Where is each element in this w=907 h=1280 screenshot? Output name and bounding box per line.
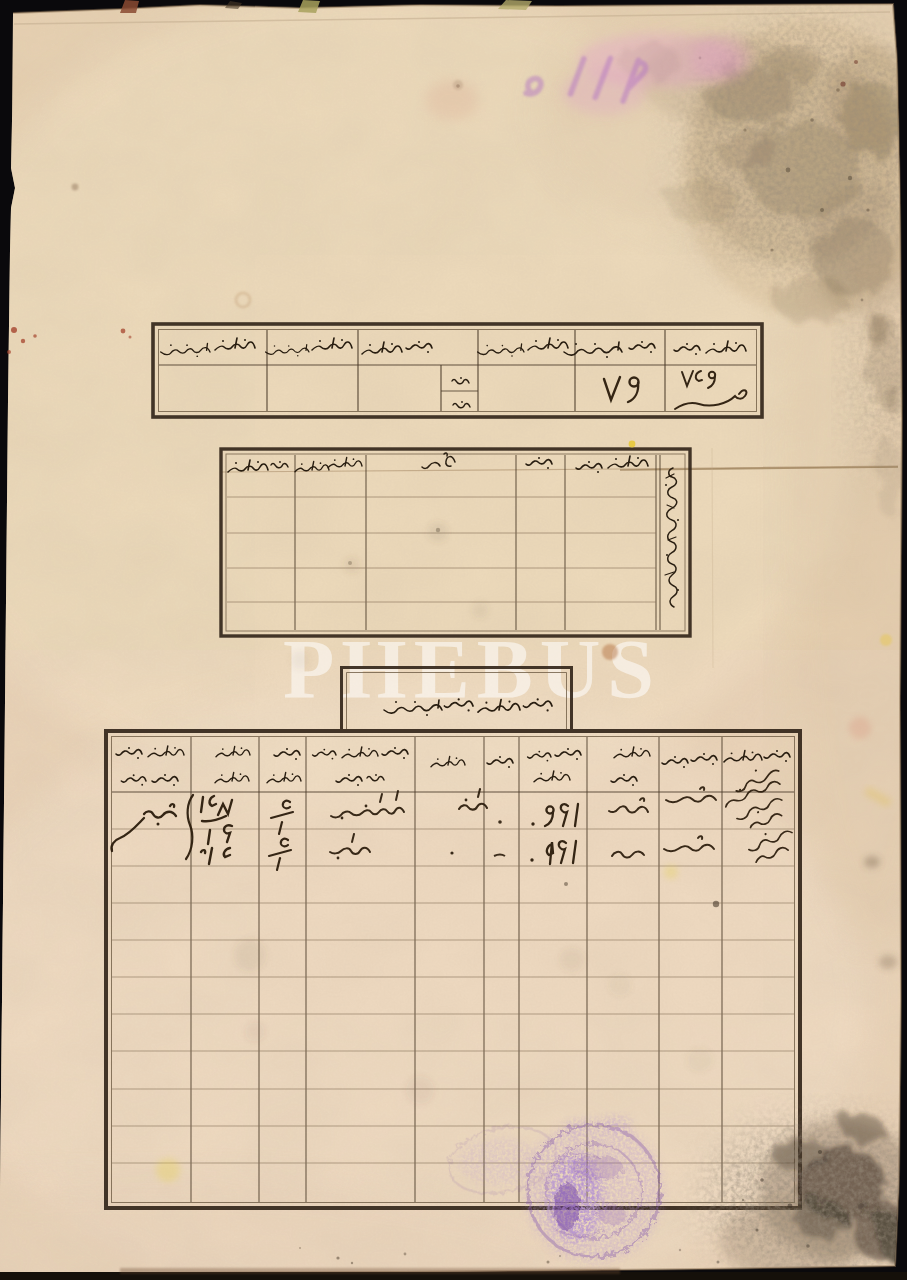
svg-text:PHEBUS: PHEBUS	[283, 623, 661, 716]
